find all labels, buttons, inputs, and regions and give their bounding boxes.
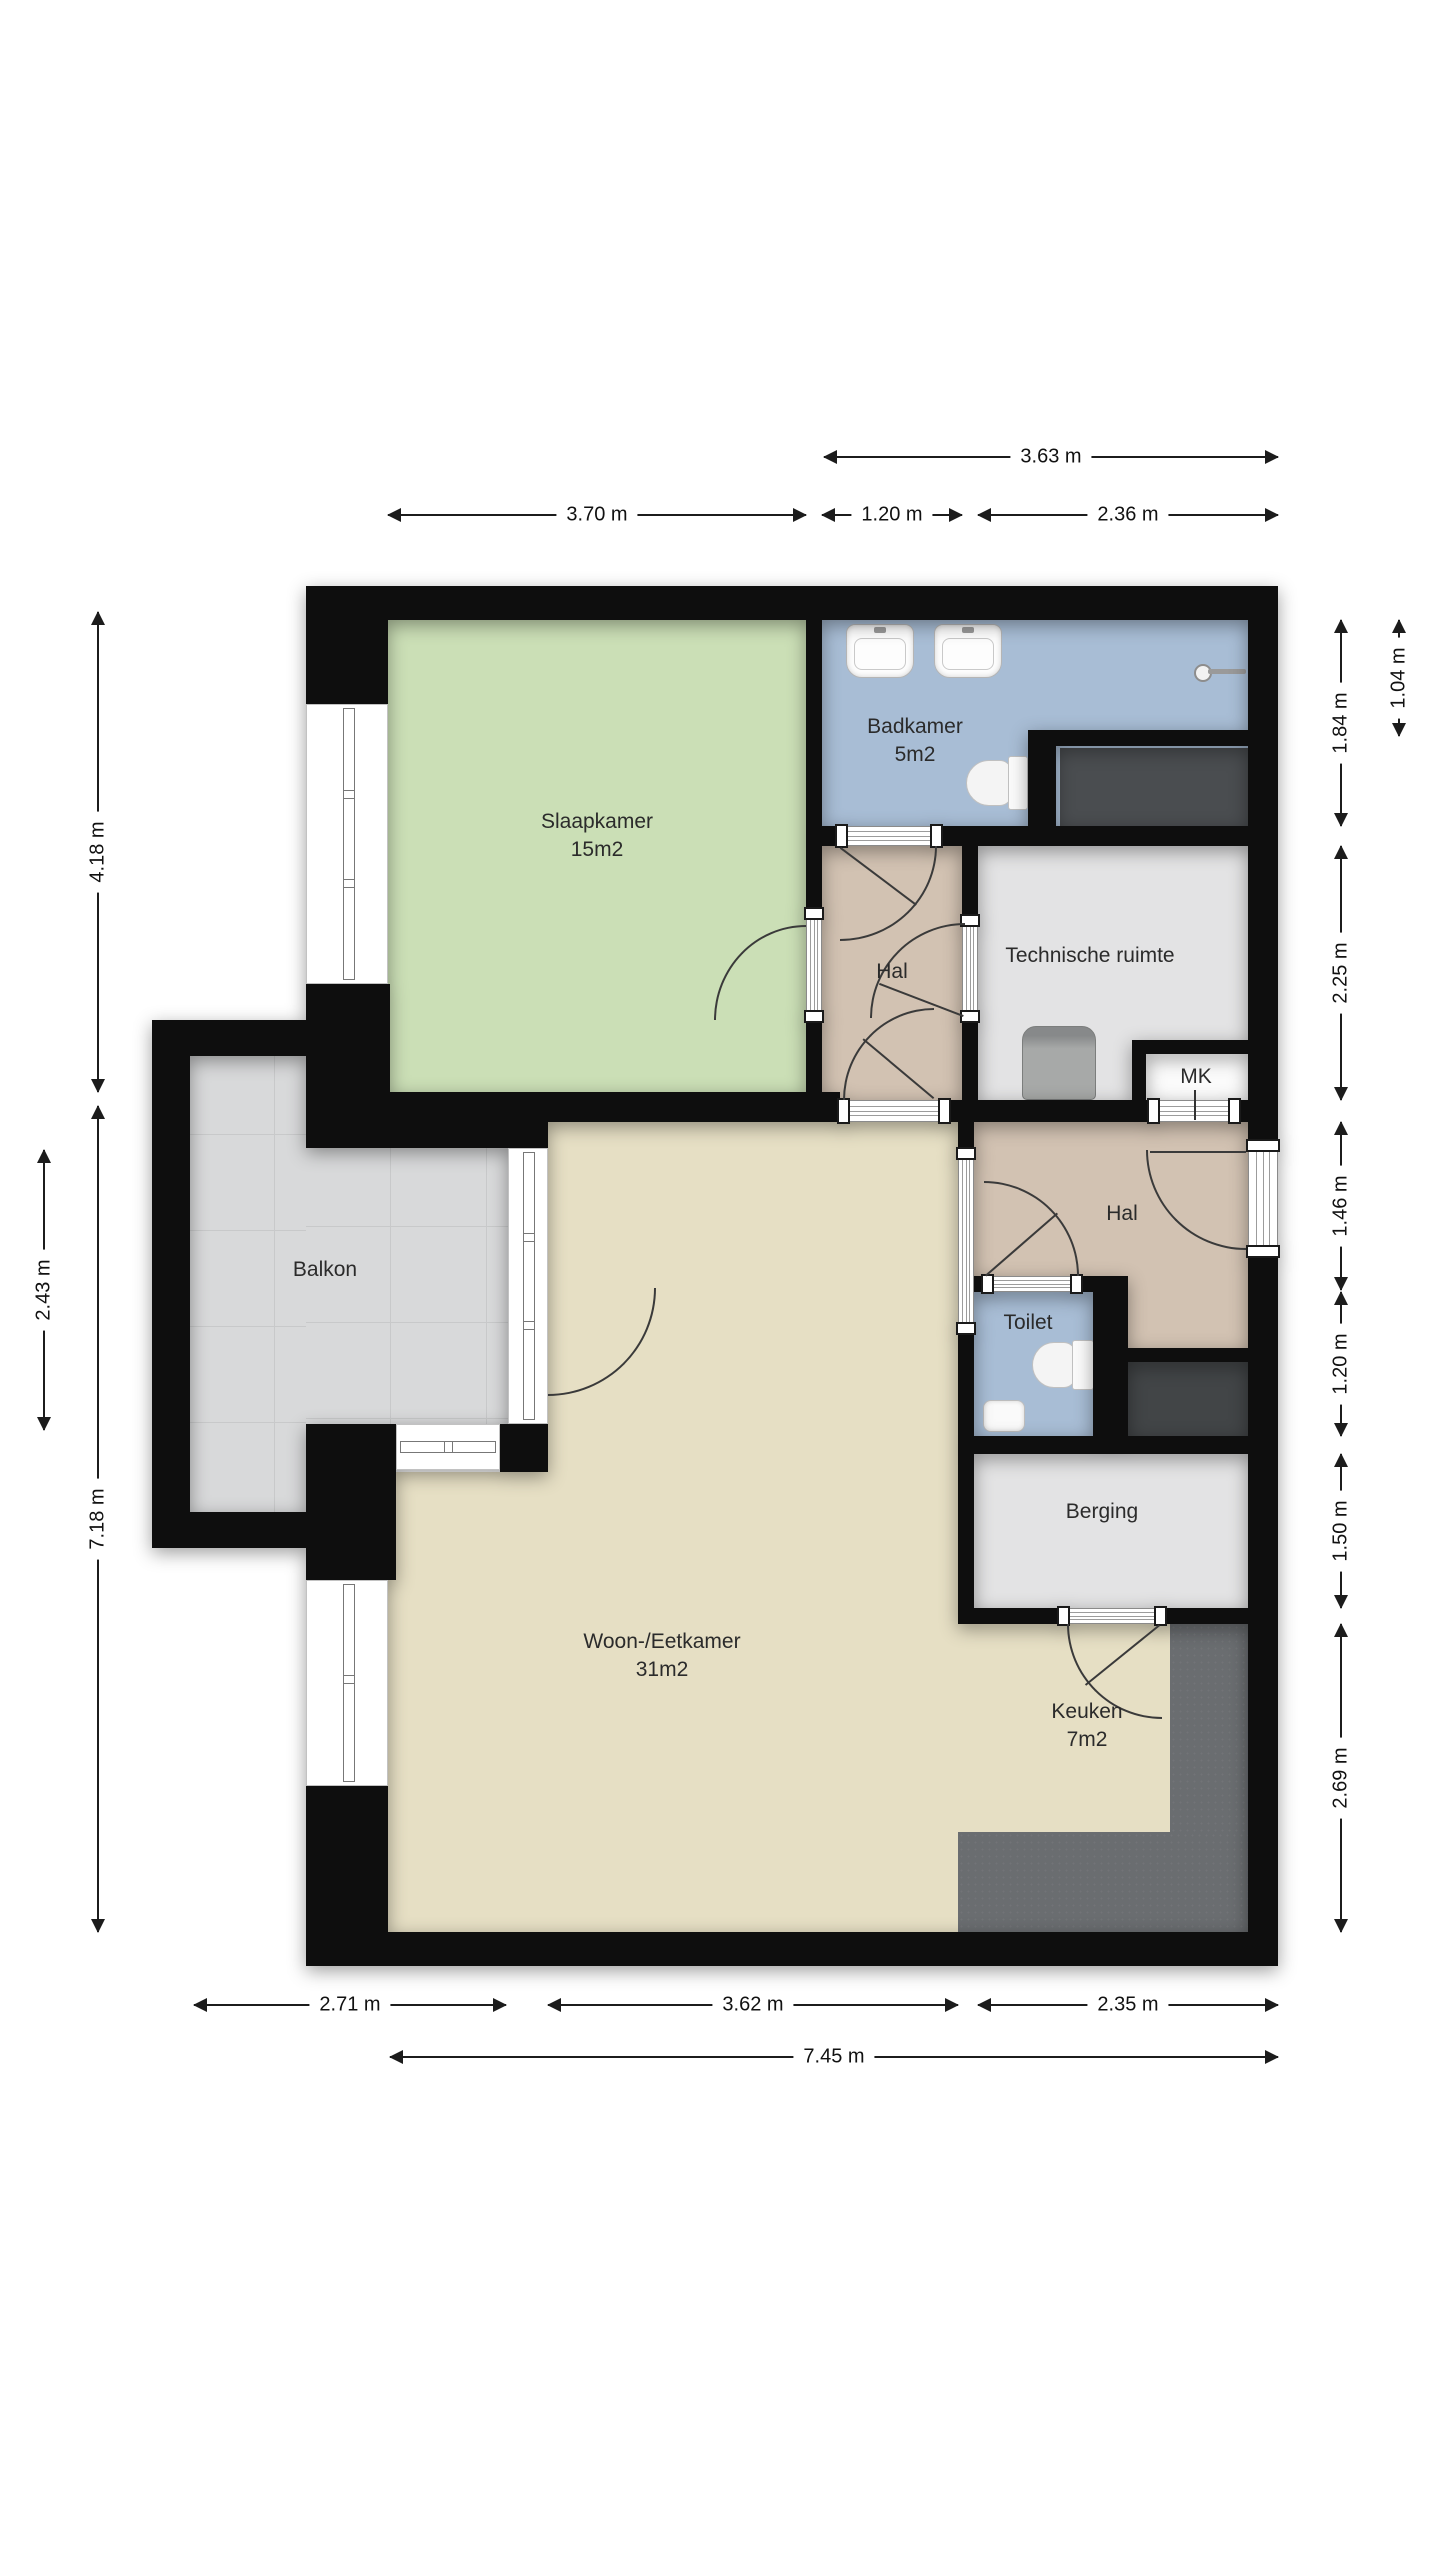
dimension-top-236: 2.36 m bbox=[978, 514, 1278, 516]
room-area-slaapkamer: 15m2 bbox=[571, 838, 624, 862]
wall-segment bbox=[940, 826, 1248, 846]
room-area-badkamer: 5m2 bbox=[895, 743, 936, 767]
wall-segment bbox=[806, 620, 822, 910]
wall-segment bbox=[306, 984, 390, 1148]
mk-leader-line bbox=[1194, 1090, 1196, 1120]
dimension-right-184: 1.84 m bbox=[1340, 620, 1342, 826]
window bbox=[508, 1148, 548, 1424]
wall-segment bbox=[962, 1020, 978, 1100]
window bbox=[306, 704, 388, 984]
dimension-right-104: 1.04 m bbox=[1398, 620, 1400, 736]
wall-segment bbox=[1248, 1255, 1278, 1966]
floorplan-page: Slaapkamer 15m2 Badkamer 5m2 Hal Technis… bbox=[0, 0, 1440, 2560]
wall-segment bbox=[1164, 1608, 1248, 1624]
walls-layer bbox=[0, 0, 1440, 2560]
room-area-woon-eetkamer: 31m2 bbox=[636, 1658, 689, 1682]
wall-segment bbox=[1128, 1348, 1248, 1362]
dimension-right-150: 1.50 m bbox=[1340, 1454, 1342, 1608]
wall-segment bbox=[306, 586, 1278, 620]
room-label-keuken: Keuken bbox=[1051, 1700, 1122, 1724]
dimension-bottom-235: 2.35 m bbox=[978, 2004, 1278, 2006]
wall-segment bbox=[1132, 1040, 1146, 1103]
wall-segment bbox=[306, 1786, 388, 1932]
wall-segment bbox=[958, 1122, 974, 1150]
door-frame-slaapkamer bbox=[806, 910, 822, 1020]
dimension-top-363: 3.63 m bbox=[824, 456, 1278, 458]
room-label-mk: MK bbox=[1180, 1065, 1212, 1089]
window-frame bbox=[343, 1584, 355, 1782]
room-label-hal-boven: Hal bbox=[876, 960, 908, 984]
wall-segment bbox=[962, 846, 978, 917]
door-frame-berging bbox=[1060, 1608, 1164, 1624]
wall-segment bbox=[806, 1020, 822, 1095]
room-label-balkon: Balkon bbox=[293, 1258, 357, 1282]
door-frame-hal-boven bbox=[840, 1100, 948, 1122]
door-frame-hal bbox=[958, 1150, 974, 1332]
wall-segment bbox=[306, 1424, 396, 1580]
wall-segment bbox=[388, 1122, 548, 1148]
wall-segment bbox=[1132, 1040, 1248, 1054]
wall-segment bbox=[1248, 586, 1278, 1142]
wall-segment bbox=[306, 586, 388, 704]
window bbox=[396, 1424, 500, 1470]
room-label-hal: Hal bbox=[1106, 1202, 1138, 1226]
wall-segment bbox=[152, 1020, 190, 1548]
wall-segment bbox=[1093, 1276, 1128, 1436]
dimension-left-418: 4.18 m bbox=[97, 612, 99, 1092]
room-label-toilet: Toilet bbox=[1003, 1311, 1052, 1335]
wall-segment bbox=[958, 1436, 1248, 1454]
room-label-technische-ruimte: Technische ruimte bbox=[1005, 944, 1174, 968]
wall-segment bbox=[306, 1932, 1278, 1966]
room-area-keuken: 7m2 bbox=[1067, 1728, 1108, 1752]
door-frame-badkamer bbox=[838, 826, 940, 846]
window-frame bbox=[343, 708, 355, 980]
room-label-woon-eetkamer: Woon-/Eetkamer bbox=[583, 1630, 740, 1654]
wall-segment bbox=[1028, 746, 1056, 828]
dimension-left-718: 7.18 m bbox=[97, 1106, 99, 1932]
dimension-bottom-271: 2.71 m bbox=[194, 2004, 506, 2006]
door-frame-toilet bbox=[984, 1276, 1080, 1292]
dimension-top-370: 3.70 m bbox=[388, 514, 806, 516]
window bbox=[306, 1580, 388, 1786]
room-label-slaapkamer: Slaapkamer bbox=[541, 810, 653, 834]
dimension-left-243: 2.43 m bbox=[43, 1150, 45, 1430]
dimension-right-120: 1.20 m bbox=[1340, 1292, 1342, 1436]
wall-segment bbox=[958, 1332, 974, 1624]
dimension-bottom-745: 7.45 m bbox=[390, 2056, 1278, 2058]
front-door-frame bbox=[1248, 1142, 1278, 1255]
dimension-right-146: 1.46 m bbox=[1340, 1122, 1342, 1290]
wall-segment bbox=[500, 1424, 548, 1472]
dimension-right-269: 2.69 m bbox=[1340, 1624, 1342, 1932]
dimension-top-120: 1.20 m bbox=[822, 514, 962, 516]
room-label-berging: Berging bbox=[1066, 1500, 1138, 1524]
window-frame bbox=[523, 1152, 535, 1420]
dimension-right-225: 2.25 m bbox=[1340, 846, 1342, 1100]
door-leaf bbox=[1150, 1151, 1246, 1153]
room-label-badkamer: Badkamer bbox=[867, 715, 963, 739]
wall-segment bbox=[958, 1608, 1060, 1624]
window-frame bbox=[400, 1441, 496, 1453]
dimension-bottom-362: 3.62 m bbox=[548, 2004, 958, 2006]
wall-segment bbox=[152, 1512, 306, 1548]
wall-segment bbox=[1028, 730, 1248, 746]
wall-segment bbox=[388, 1092, 840, 1122]
wall-segment bbox=[948, 1100, 1150, 1122]
